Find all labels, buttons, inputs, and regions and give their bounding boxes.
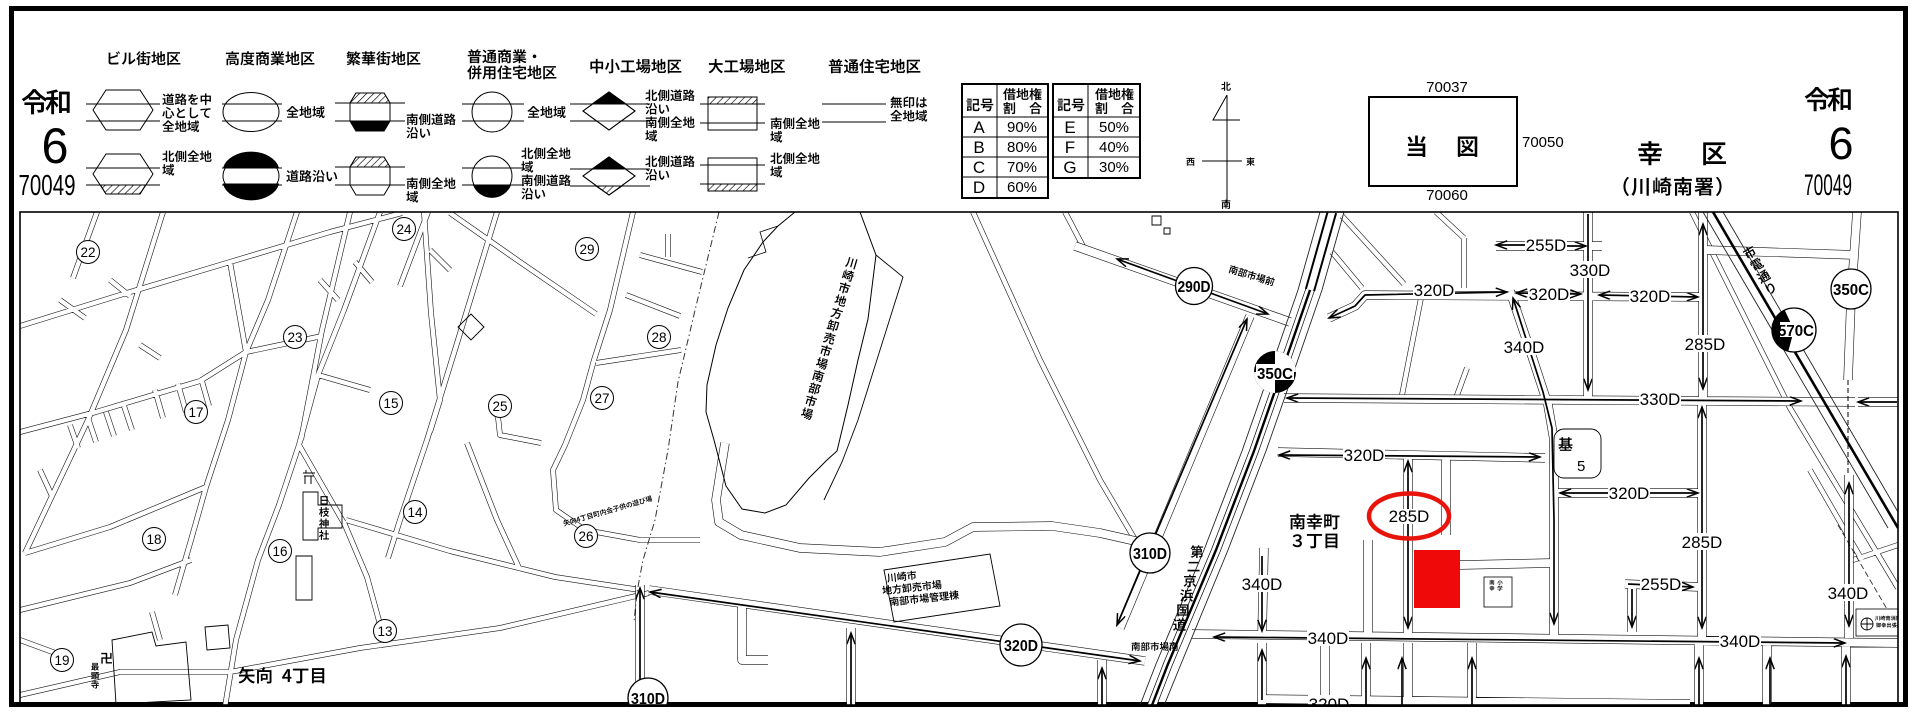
svg-text:80%: 80% (1007, 139, 1037, 156)
svg-text:255D: 255D (1526, 236, 1567, 255)
svg-text:A: A (973, 118, 985, 137)
svg-text:C: C (973, 158, 985, 177)
svg-text:16: 16 (272, 544, 287, 559)
svg-text:22: 22 (80, 245, 95, 260)
svg-text:340D: 340D (1504, 338, 1545, 357)
svg-text:320D: 320D (1609, 484, 1650, 503)
svg-text:70050: 70050 (1522, 134, 1564, 151)
svg-text:6: 6 (1829, 118, 1854, 169)
svg-text:320D: 320D (1004, 638, 1038, 655)
svg-text:13: 13 (377, 624, 392, 639)
svg-text:350C: 350C (1257, 366, 1293, 383)
svg-text:290D: 290D (1178, 279, 1211, 296)
svg-text:60%: 60% (1007, 179, 1037, 196)
svg-text:70049: 70049 (19, 170, 76, 202)
svg-text:570C: 570C (1778, 323, 1814, 340)
svg-text:330D: 330D (1640, 390, 1681, 409)
svg-text:285D: 285D (1682, 533, 1723, 552)
svg-text:27: 27 (594, 391, 609, 406)
svg-text:19: 19 (54, 653, 69, 668)
svg-text:340D: 340D (1720, 632, 1761, 651)
svg-text:5: 5 (1577, 458, 1585, 475)
svg-text:350C: 350C (1833, 282, 1869, 299)
svg-text:G: G (1063, 158, 1076, 177)
svg-text:320D: 320D (1529, 285, 1570, 304)
svg-text:17: 17 (188, 405, 203, 420)
svg-text:50%: 50% (1099, 119, 1129, 136)
svg-text:30%: 30% (1099, 159, 1129, 176)
svg-text:285D: 285D (1389, 507, 1430, 526)
svg-text:310D: 310D (1133, 546, 1167, 563)
svg-text:70037: 70037 (1426, 79, 1468, 96)
svg-text:18: 18 (146, 532, 161, 547)
svg-text:330D: 330D (1570, 261, 1611, 280)
svg-text:28: 28 (651, 330, 666, 345)
svg-text:340D: 340D (1242, 575, 1283, 594)
svg-text:6: 6 (42, 118, 69, 174)
svg-text:D: D (973, 178, 985, 197)
svg-text:70049: 70049 (1804, 169, 1852, 202)
svg-text:320D: 320D (1630, 287, 1671, 306)
svg-text:E: E (1064, 118, 1075, 137)
svg-text:25: 25 (492, 399, 507, 414)
svg-text:70060: 70060 (1426, 187, 1468, 204)
svg-text:14: 14 (407, 505, 423, 520)
svg-text:340D: 340D (1828, 584, 1869, 603)
svg-text:40%: 40% (1099, 139, 1129, 156)
svg-text:B: B (973, 138, 984, 157)
svg-text:90%: 90% (1007, 119, 1037, 136)
svg-text:70%: 70% (1007, 159, 1037, 176)
svg-text:F: F (1065, 138, 1075, 157)
svg-text:285D: 285D (1685, 335, 1726, 354)
svg-text:26: 26 (578, 529, 593, 544)
svg-text:15: 15 (383, 396, 398, 411)
svg-text:320D: 320D (1414, 281, 1455, 300)
svg-text:29: 29 (579, 242, 594, 257)
svg-text:24: 24 (396, 222, 412, 237)
svg-text:320D: 320D (1344, 446, 1385, 465)
svg-text:255D: 255D (1641, 575, 1682, 594)
svg-text:23: 23 (287, 330, 302, 345)
svg-text:340D: 340D (1308, 629, 1349, 648)
